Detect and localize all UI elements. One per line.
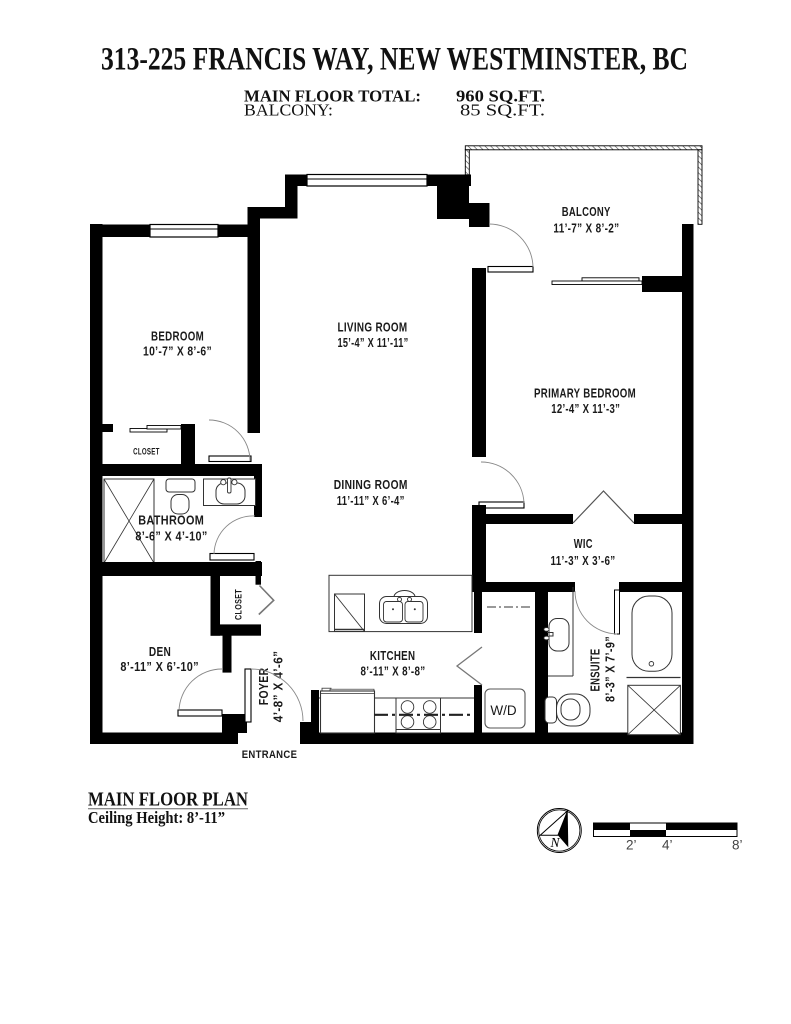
svg-text:BALCONY: BALCONY: [562, 205, 611, 219]
svg-text:313-225 FRANCIS WAY, NEW WESTM: 313-225 FRANCIS WAY, NEW WESTMINSTER, BC: [101, 42, 688, 78]
svg-text:KITCHEN: KITCHEN: [370, 649, 416, 663]
svg-text:BALCONY:: BALCONY:: [244, 101, 333, 120]
svg-text:12’-4” X 11’-3”: 12’-4” X 11’-3”: [551, 402, 620, 416]
svg-text:LIVING ROOM: LIVING ROOM: [338, 320, 408, 334]
svg-text:11’-3” X 3’-6”: 11’-3” X 3’-6”: [551, 554, 616, 568]
svg-text:2’: 2’: [626, 838, 637, 853]
svg-text:8’: 8’: [732, 838, 743, 853]
svg-text:CLOSET: CLOSET: [133, 446, 160, 457]
svg-text:11’-7” X 8’-2”: 11’-7” X 8’-2”: [553, 222, 619, 236]
svg-text:15’-4” X 11’-11”: 15’-4” X 11’-11”: [338, 336, 409, 350]
svg-text:8’-3” X 7’-9”: 8’-3” X 7’-9”: [604, 636, 618, 702]
svg-text:DINING ROOM: DINING ROOM: [334, 478, 408, 492]
svg-text:CLOSET: CLOSET: [234, 589, 245, 620]
svg-text:8’-6” X 4’-10”: 8’-6” X 4’-10”: [135, 530, 207, 544]
svg-text:8’-11” X 6’-10”: 8’-11” X 6’-10”: [120, 660, 199, 674]
svg-text:BATHROOM: BATHROOM: [138, 514, 204, 528]
svg-text:85 SQ.FT.: 85 SQ.FT.: [460, 101, 545, 120]
svg-text:ENSUITE: ENSUITE: [589, 649, 603, 692]
svg-text:Ceiling Height: 8’-11”: Ceiling Height: 8’-11”: [88, 808, 225, 827]
svg-text:4’-8” X 4’-6”: 4’-8” X 4’-6”: [272, 651, 286, 723]
svg-text:BEDROOM: BEDROOM: [151, 329, 204, 343]
svg-text:FOYER: FOYER: [257, 668, 271, 706]
svg-text:10’-7” X 8’-6”: 10’-7” X 8’-6”: [143, 344, 212, 358]
svg-text:4’: 4’: [662, 838, 673, 853]
svg-text:W/D: W/D: [490, 703, 517, 718]
svg-text:N: N: [549, 835, 560, 850]
svg-text:8’-11” X 8’-8”: 8’-11” X 8’-8”: [361, 664, 426, 678]
svg-text:WIC: WIC: [574, 537, 593, 551]
svg-text:11’-11” X 6’-4”: 11’-11” X 6’-4”: [337, 494, 405, 508]
svg-text:PRIMARY BEDROOM: PRIMARY BEDROOM: [534, 386, 636, 400]
svg-text:ENTRANCE: ENTRANCE: [242, 749, 298, 761]
svg-text:DEN: DEN: [149, 645, 171, 659]
